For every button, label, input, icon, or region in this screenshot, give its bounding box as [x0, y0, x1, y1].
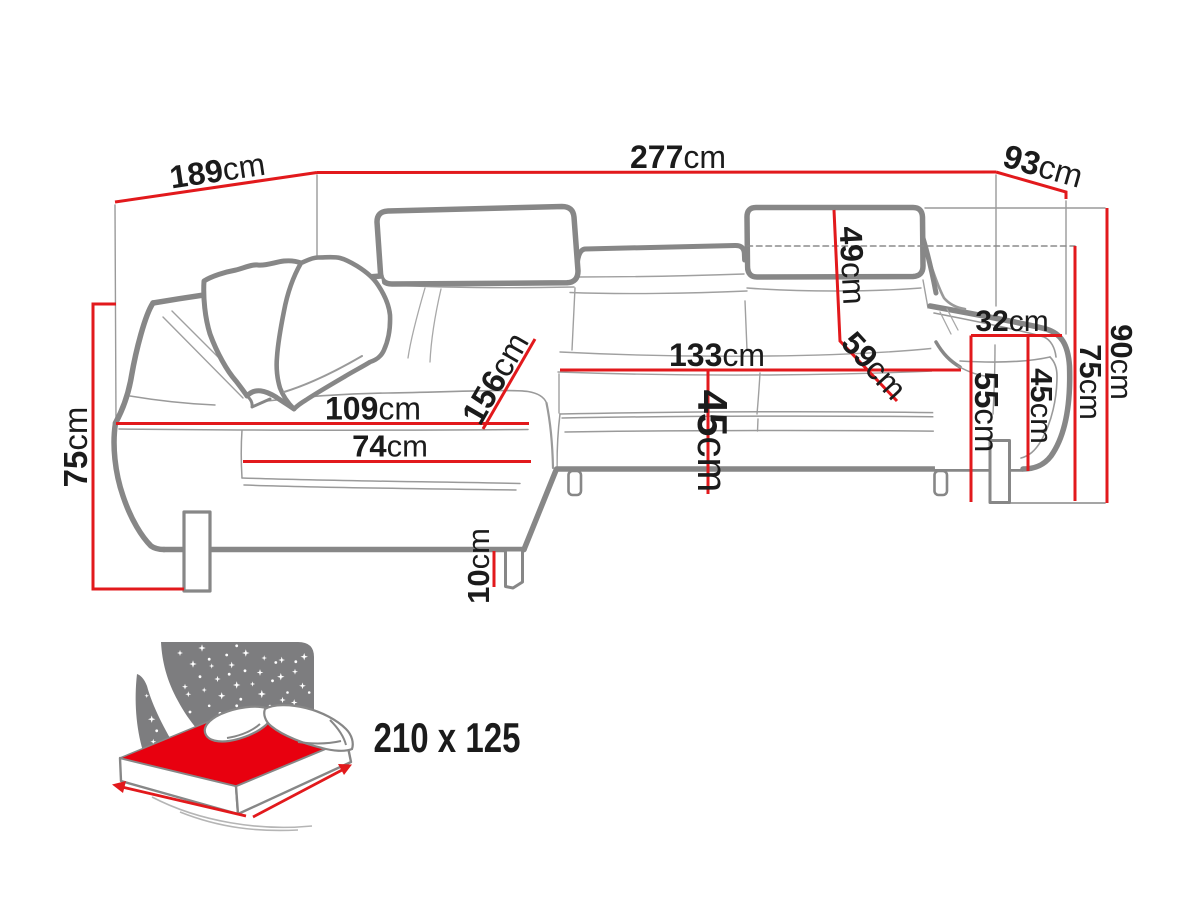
svg-text:45cm: 45cm [689, 390, 736, 493]
svg-text:55cm: 55cm [968, 372, 1005, 453]
svg-text:74cm: 74cm [352, 429, 428, 464]
svg-text:45cm: 45cm [1024, 368, 1059, 444]
svg-text:49cm: 49cm [832, 225, 872, 305]
svg-text:109cm: 109cm [325, 391, 421, 427]
svg-text:32cm: 32cm [975, 305, 1048, 338]
svg-text:90cm: 90cm [1104, 324, 1139, 400]
svg-text:277cm: 277cm [630, 139, 726, 175]
svg-text:75cm: 75cm [1073, 344, 1108, 420]
svg-text:133cm: 133cm [669, 337, 765, 373]
svg-text:75cm: 75cm [57, 407, 94, 488]
svg-text:10cm: 10cm [461, 528, 496, 604]
svg-text:210 x 125: 210 x 125 [374, 714, 521, 761]
